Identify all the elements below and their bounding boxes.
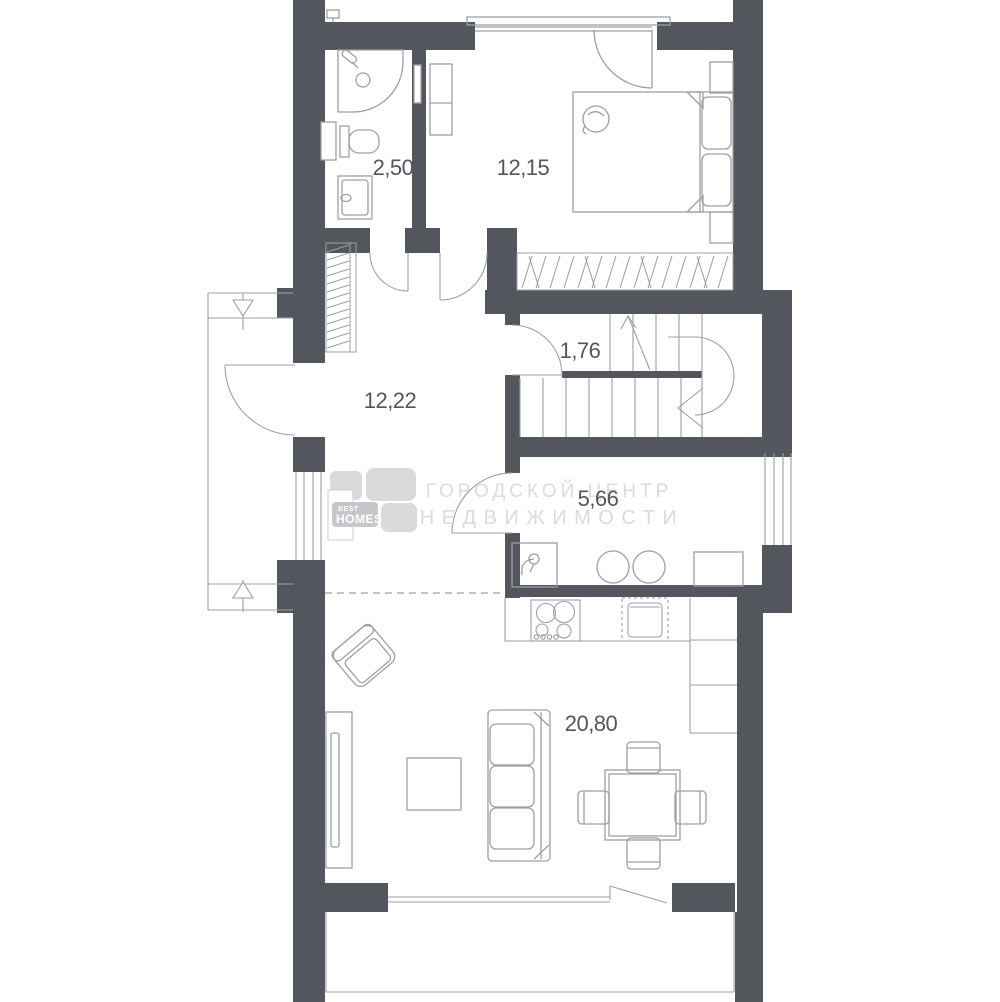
room-area-label-bathroom: 2,50 [373, 155, 414, 180]
nightstand-bottom [710, 212, 733, 243]
oven-icon [622, 598, 668, 641]
armchair-icon [330, 622, 398, 689]
terrace-door [388, 886, 667, 903]
balcony-door [225, 365, 295, 435]
room-area-label-bedroom: 12,15 [497, 155, 550, 180]
vent-stub-icon [327, 10, 339, 22]
bedroom-closet-hatched [517, 253, 733, 290]
bathroom-door [370, 253, 408, 291]
toilet-icon [340, 126, 379, 157]
shower-icon [338, 49, 403, 112]
bedroom-balcony-rail [467, 17, 670, 25]
sofa-icon [488, 710, 550, 861]
kitchen-counter [505, 598, 737, 733]
watermark-line2: НЕДВИЖИМОСТИ [420, 507, 684, 529]
kitchen-bowl-left [597, 551, 629, 583]
floor-plan: ГОРОДСКОЙ ЦЕНТР НЕДВИЖИМОСТИ BEST HOMES … [0, 0, 1000, 1002]
bedroom-door [440, 253, 487, 300]
washing-machine-icon [338, 176, 372, 219]
best-homes-logo: BEST HOMES [328, 468, 417, 540]
nightstand-top [710, 62, 733, 93]
kitchen-counter-block [694, 552, 743, 586]
balcony-arrow-bottom-icon [233, 580, 253, 612]
logo-text-homes: HOMES [336, 512, 383, 526]
stair-landing-door [512, 325, 562, 375]
room-area-label-stair-landing: 1,76 [560, 338, 601, 363]
pipe-niche [321, 122, 336, 160]
dining-table-icon [605, 770, 680, 840]
room-area-label-living-room: 20,80 [565, 711, 618, 736]
coffee-table-icon [407, 758, 461, 810]
room-area-label-kitchen: 5,66 [578, 486, 619, 511]
tv-stand-icon [326, 712, 352, 868]
hallway-wardrobe-hatched [326, 243, 356, 352]
kitchen-window [765, 453, 791, 545]
balcony-arrow-top-icon [233, 293, 253, 330]
bedroom-balcony-door [475, 27, 652, 88]
stove-icon [531, 600, 580, 641]
watermark-line1: ГОРОДСКОЙ ЦЕНТР [426, 480, 673, 502]
bed-icon [573, 92, 733, 212]
terrace-outline [326, 912, 734, 992]
dining-chairs [578, 742, 706, 869]
room-area-label-hallway: 12,22 [364, 388, 417, 413]
kitchen-bowl-right [633, 551, 665, 583]
hallway-window [296, 472, 321, 560]
